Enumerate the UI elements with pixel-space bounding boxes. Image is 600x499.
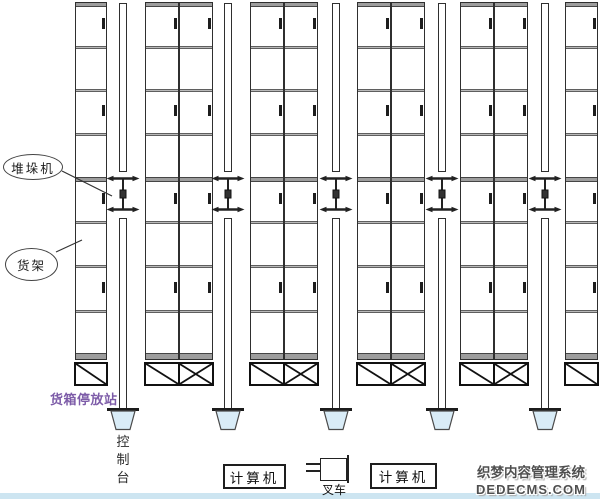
forklift-body (320, 458, 347, 481)
stacker-crane-icon-4 (425, 175, 459, 213)
console-trapezoid-icon-2 (212, 408, 244, 431)
forklift-fork-top (306, 463, 321, 465)
computer-box-left: 计算机 (223, 464, 286, 489)
watermark-line1: 织梦内容管理系统 (468, 461, 594, 481)
stacker-crane-icon-5 (528, 175, 562, 213)
crane-rail-upper-4 (438, 3, 446, 172)
rack-label: 货架 (17, 255, 46, 274)
crane-rail-lower-2 (224, 218, 232, 409)
crane-rail-lower-1 (119, 218, 127, 409)
stacker-crane-icon-2 (211, 175, 245, 213)
forklift-label: 叉车 (316, 481, 352, 498)
watermark-line2: DEDECMS.COM (468, 482, 594, 497)
crane-rail-upper-3 (332, 3, 340, 172)
console-trapezoid-icon-3 (320, 408, 352, 431)
crane-rail-lower-5 (541, 218, 549, 409)
stacker-crane-label: 堆垛机 (11, 158, 55, 177)
crane-rail-upper-2 (224, 3, 232, 172)
console-trapezoid-icon-5 (529, 408, 561, 431)
computer-box-right: 计算机 (370, 463, 437, 489)
stacker-crane-callout: 堆垛机 (3, 154, 63, 180)
automated-warehouse-diagram: 堆垛机 货架 货箱停放站 控制台 计算机 计算机 叉车 织梦内容管理系统 DED… (0, 0, 600, 499)
forklift-mast (347, 455, 350, 483)
console-trapezoid-icon-4 (426, 408, 458, 431)
crane-rail-lower-3 (332, 218, 340, 409)
forklift-fork-bottom (306, 470, 321, 472)
rails-layer (0, 0, 600, 499)
rack-callout: 货架 (5, 248, 58, 281)
stacker-crane-icon-3 (319, 175, 353, 213)
stacker-crane-icon-1 (106, 175, 140, 213)
crane-rail-upper-5 (541, 3, 549, 172)
console-trapezoid-icon-1 (107, 408, 139, 431)
crane-rail-lower-4 (438, 218, 446, 409)
computer-left-label: 计算机 (230, 467, 280, 487)
computer-right-label: 计算机 (379, 466, 429, 486)
watermark: 织梦内容管理系统 DEDECMS.COM (468, 461, 594, 497)
crane-rail-upper-1 (119, 3, 127, 172)
container-station-label: 货箱停放站 (50, 389, 118, 408)
console-label: 控制台 (115, 433, 131, 487)
